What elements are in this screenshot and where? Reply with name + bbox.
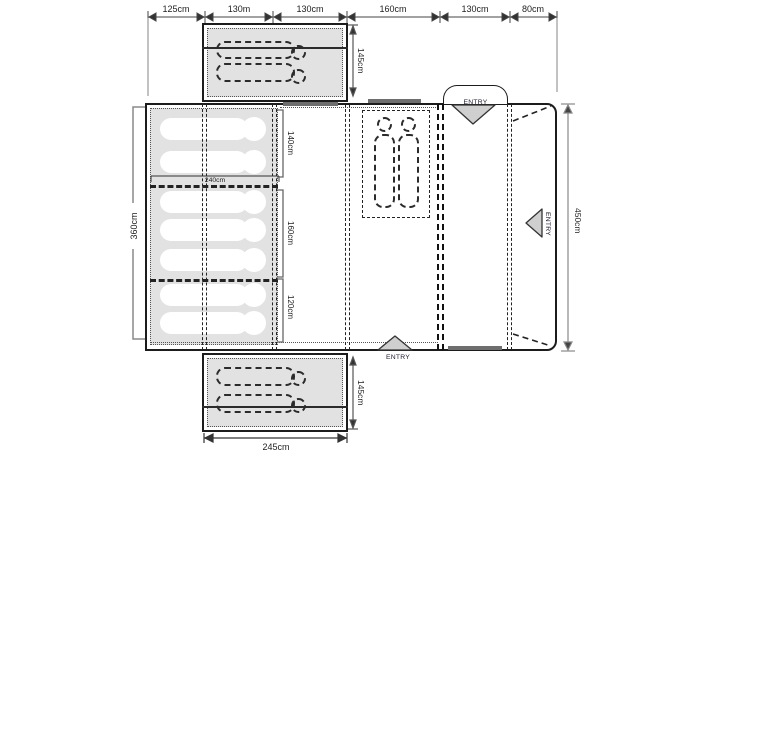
- right-total-label: 450cm: [573, 198, 583, 244]
- dim-label-top-2: 130m: [214, 3, 264, 15]
- sleeping-bag-head-icon: [242, 283, 266, 307]
- bottom-annex-width-label: 245cm: [246, 441, 306, 453]
- dim-label-top-3: 130cm: [285, 3, 335, 15]
- sleeping-bag-head-icon: [242, 190, 266, 214]
- sleeping-bag-head-icon: [242, 117, 266, 141]
- divider-dashed-line-heavy: [437, 104, 444, 350]
- left-total-label: 360cm: [128, 203, 140, 249]
- divider-dashed-line: [272, 104, 277, 350]
- entry-label-bottom: ENTRY: [376, 352, 420, 364]
- dim-label-top-1: 125cm: [151, 3, 201, 15]
- person-head-icon: [377, 117, 392, 132]
- dim-label-top-6: 80cm: [508, 3, 558, 15]
- entry-label-right: ENTRY: [544, 206, 551, 242]
- divider-dashed-line: [202, 104, 207, 350]
- bedroom-divider-line: [150, 279, 278, 282]
- inner-width-label: 240cm: [190, 177, 240, 185]
- divider-dashed-line: [345, 104, 350, 350]
- person-head-icon: [401, 117, 416, 132]
- divider-dashed-line: [507, 104, 512, 350]
- sleeping-bag-icon: [216, 41, 295, 59]
- entry-porch-arch: ENTRY: [443, 85, 508, 104]
- sleeping-bag-icon: [216, 63, 295, 82]
- bottom-annex-pole-line: [202, 406, 348, 408]
- bedroom-depth-label-3: 120cm: [286, 284, 295, 330]
- entry-label-top: ENTRY: [464, 99, 488, 106]
- tent-floorplan-diagram: 125cm 130m 130cm 160cm 130cm 80cm 145cm …: [0, 0, 758, 734]
- sleeping-bag-head-icon: [291, 69, 306, 84]
- sleeping-bag-head-icon: [242, 311, 266, 335]
- door-sill-bar: [368, 99, 421, 103]
- bedroom-depth-label-1: 140cm: [286, 120, 295, 166]
- sleeping-bag-head-icon: [242, 150, 266, 174]
- sleeping-bag-head-icon: [242, 218, 266, 242]
- bedroom-divider-line: [150, 185, 278, 188]
- standing-area-outline: [362, 110, 430, 218]
- dim-label-top-5: 130cm: [450, 3, 500, 15]
- sleeping-bag-head-icon: [291, 371, 306, 386]
- person-icon: [398, 134, 419, 208]
- door-sill-bar: [448, 346, 502, 350]
- sleeping-bag-head-icon: [242, 248, 266, 272]
- person-icon: [374, 134, 395, 208]
- door-sill-bar: [283, 102, 338, 106]
- sleeping-bag-icon: [216, 394, 295, 413]
- bottom-annex-depth-label: 145cm: [356, 370, 366, 416]
- inner-dotted-line-bottom: [150, 342, 438, 343]
- top-annex-depth-label: 145cm: [356, 38, 366, 84]
- inner-dotted-line-top: [280, 107, 438, 108]
- sleeping-bag-icon: [216, 367, 295, 386]
- top-annex-pole-line: [202, 47, 348, 49]
- dim-label-top-4: 160cm: [368, 3, 418, 15]
- bedroom-depth-label-2: 160cm: [286, 210, 295, 256]
